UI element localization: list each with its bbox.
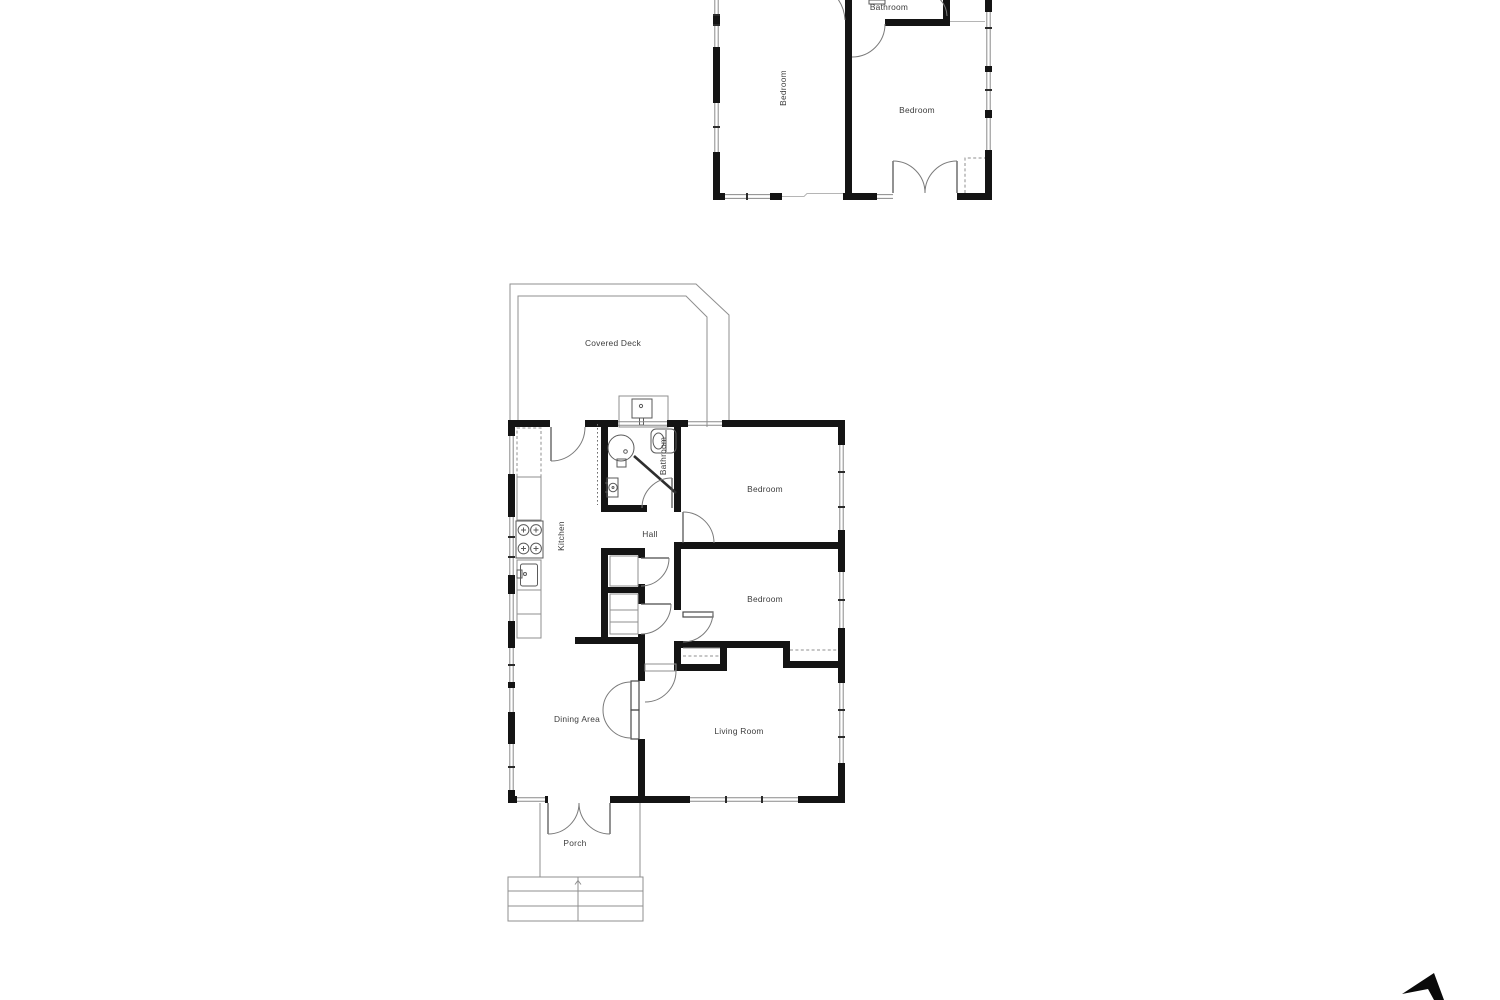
steps-up-arrow-icon (575, 881, 581, 890)
north-arrow-icon (1402, 973, 1444, 1000)
room-label-upper-bedroom-left: Bedroom (778, 70, 788, 106)
main-floor-plan: Kitchen Bathroom Hall Bedroom Bedroom Di… (508, 420, 845, 834)
porch: Porch (508, 803, 643, 921)
shower-icon (608, 435, 634, 467)
room-label-upper-bedroom-right: Bedroom (899, 105, 935, 115)
floorplan-canvas: Bathroom Bedroom Bedroom Covered Deck (0, 0, 1500, 1000)
room-label-porch: Porch (563, 838, 586, 848)
kitchen-sink-icon (517, 560, 541, 590)
room-label-bedroom-top: Bedroom (747, 484, 783, 494)
room-label-dining-area: Dining Area (554, 714, 600, 724)
room-label-covered-deck: Covered Deck (585, 338, 642, 348)
room-label-bedroom-middle: Bedroom (747, 594, 783, 604)
bathroom-sink-icon (605, 478, 618, 497)
upper-floor-plan: Bathroom Bedroom Bedroom (713, 0, 992, 200)
room-label-kitchen: Kitchen (556, 521, 566, 551)
floorplan-page: Bathroom Bedroom Bedroom Covered Deck (0, 0, 1500, 1000)
room-label-living-room: Living Room (714, 726, 763, 736)
covered-deck: Covered Deck (510, 284, 729, 427)
room-label-bathroom: Bathroom (658, 437, 668, 475)
room-label-upper-bathroom: Bathroom (870, 2, 908, 12)
room-label-hall: Hall (642, 529, 657, 539)
stove-icon (516, 521, 543, 558)
